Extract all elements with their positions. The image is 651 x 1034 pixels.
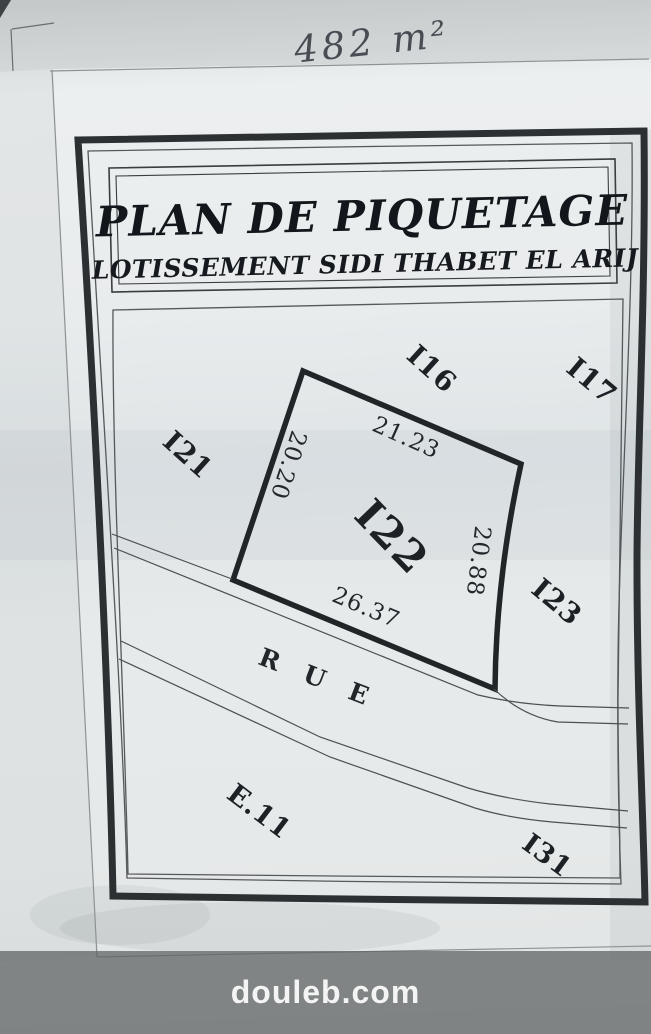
watermark-text: douleb.com (231, 974, 421, 1011)
street-edge-lower-1 (121, 641, 628, 811)
watermark-bar: douleb.com (0, 951, 651, 1034)
photographed-plan-document: 482 m² PLAN DE PIQUETAGE LOTISSEMENT SID… (0, 0, 651, 1034)
